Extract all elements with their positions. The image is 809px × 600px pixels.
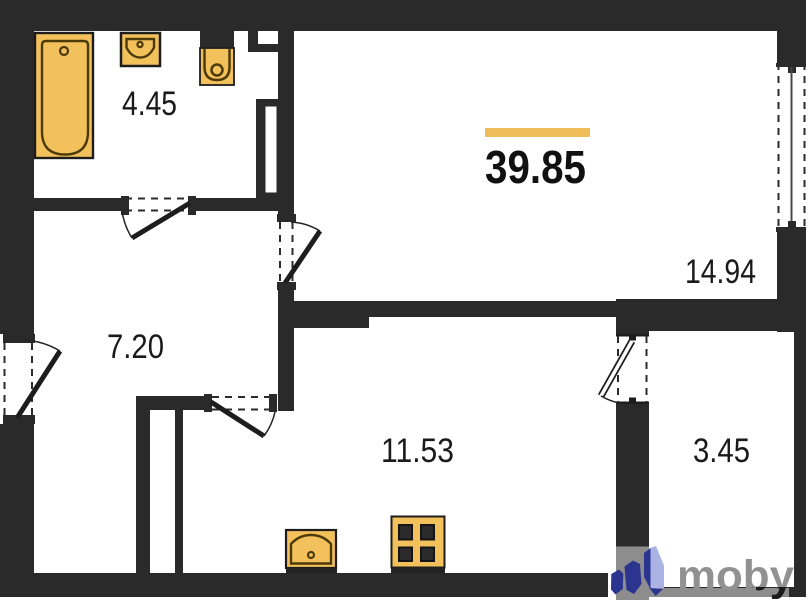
- svg-text:7.20: 7.20: [107, 328, 164, 366]
- svg-text:11.53: 11.53: [381, 432, 454, 470]
- svg-text:3.45: 3.45: [693, 432, 750, 470]
- svg-text:39.85: 39.85: [485, 141, 586, 193]
- svg-text:14.94: 14.94: [685, 253, 756, 291]
- svg-text:4.45: 4.45: [122, 85, 177, 123]
